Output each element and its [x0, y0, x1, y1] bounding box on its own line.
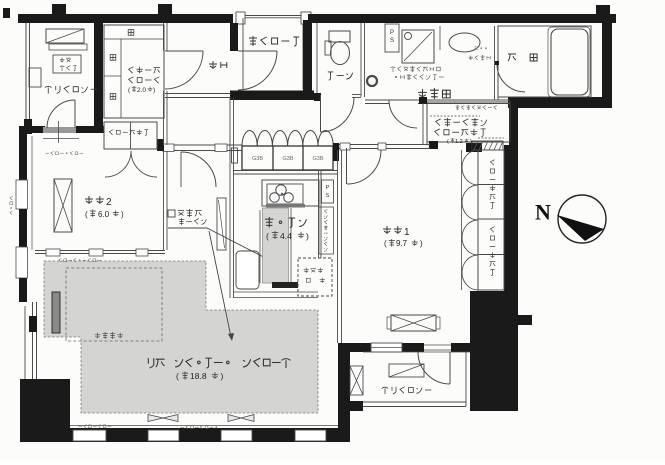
svg-text:1.2: 1.2	[455, 139, 463, 145]
svg-text:2.0: 2.0	[137, 87, 146, 94]
svg-text:(: (	[266, 231, 269, 241]
svg-text:(: (	[176, 371, 179, 381]
svg-text:): )	[420, 239, 423, 248]
svg-text:4.4: 4.4	[280, 231, 292, 241]
svg-text:P: P	[326, 185, 330, 191]
svg-text:): )	[121, 210, 124, 219]
svg-text:G3B: G3B	[282, 156, 293, 162]
svg-text:2: 2	[106, 197, 112, 208]
svg-text:1: 1	[404, 227, 410, 238]
svg-text:N: N	[535, 200, 551, 225]
svg-text:6.0: 6.0	[98, 210, 110, 219]
svg-text:): )	[306, 231, 309, 241]
svg-text:G3B: G3B	[312, 156, 323, 162]
svg-text:18.8: 18.8	[190, 371, 207, 381]
svg-text:(: (	[384, 239, 387, 248]
svg-text:G3B: G3B	[252, 156, 263, 162]
svg-text:): )	[153, 87, 155, 94]
svg-text:(: (	[85, 210, 88, 219]
svg-text:P: P	[390, 30, 394, 36]
svg-text:9.7: 9.7	[396, 239, 408, 248]
svg-text:S: S	[326, 193, 330, 199]
svg-text:): )	[221, 371, 224, 381]
svg-text:S: S	[390, 38, 394, 44]
svg-text:(: (	[447, 139, 449, 145]
